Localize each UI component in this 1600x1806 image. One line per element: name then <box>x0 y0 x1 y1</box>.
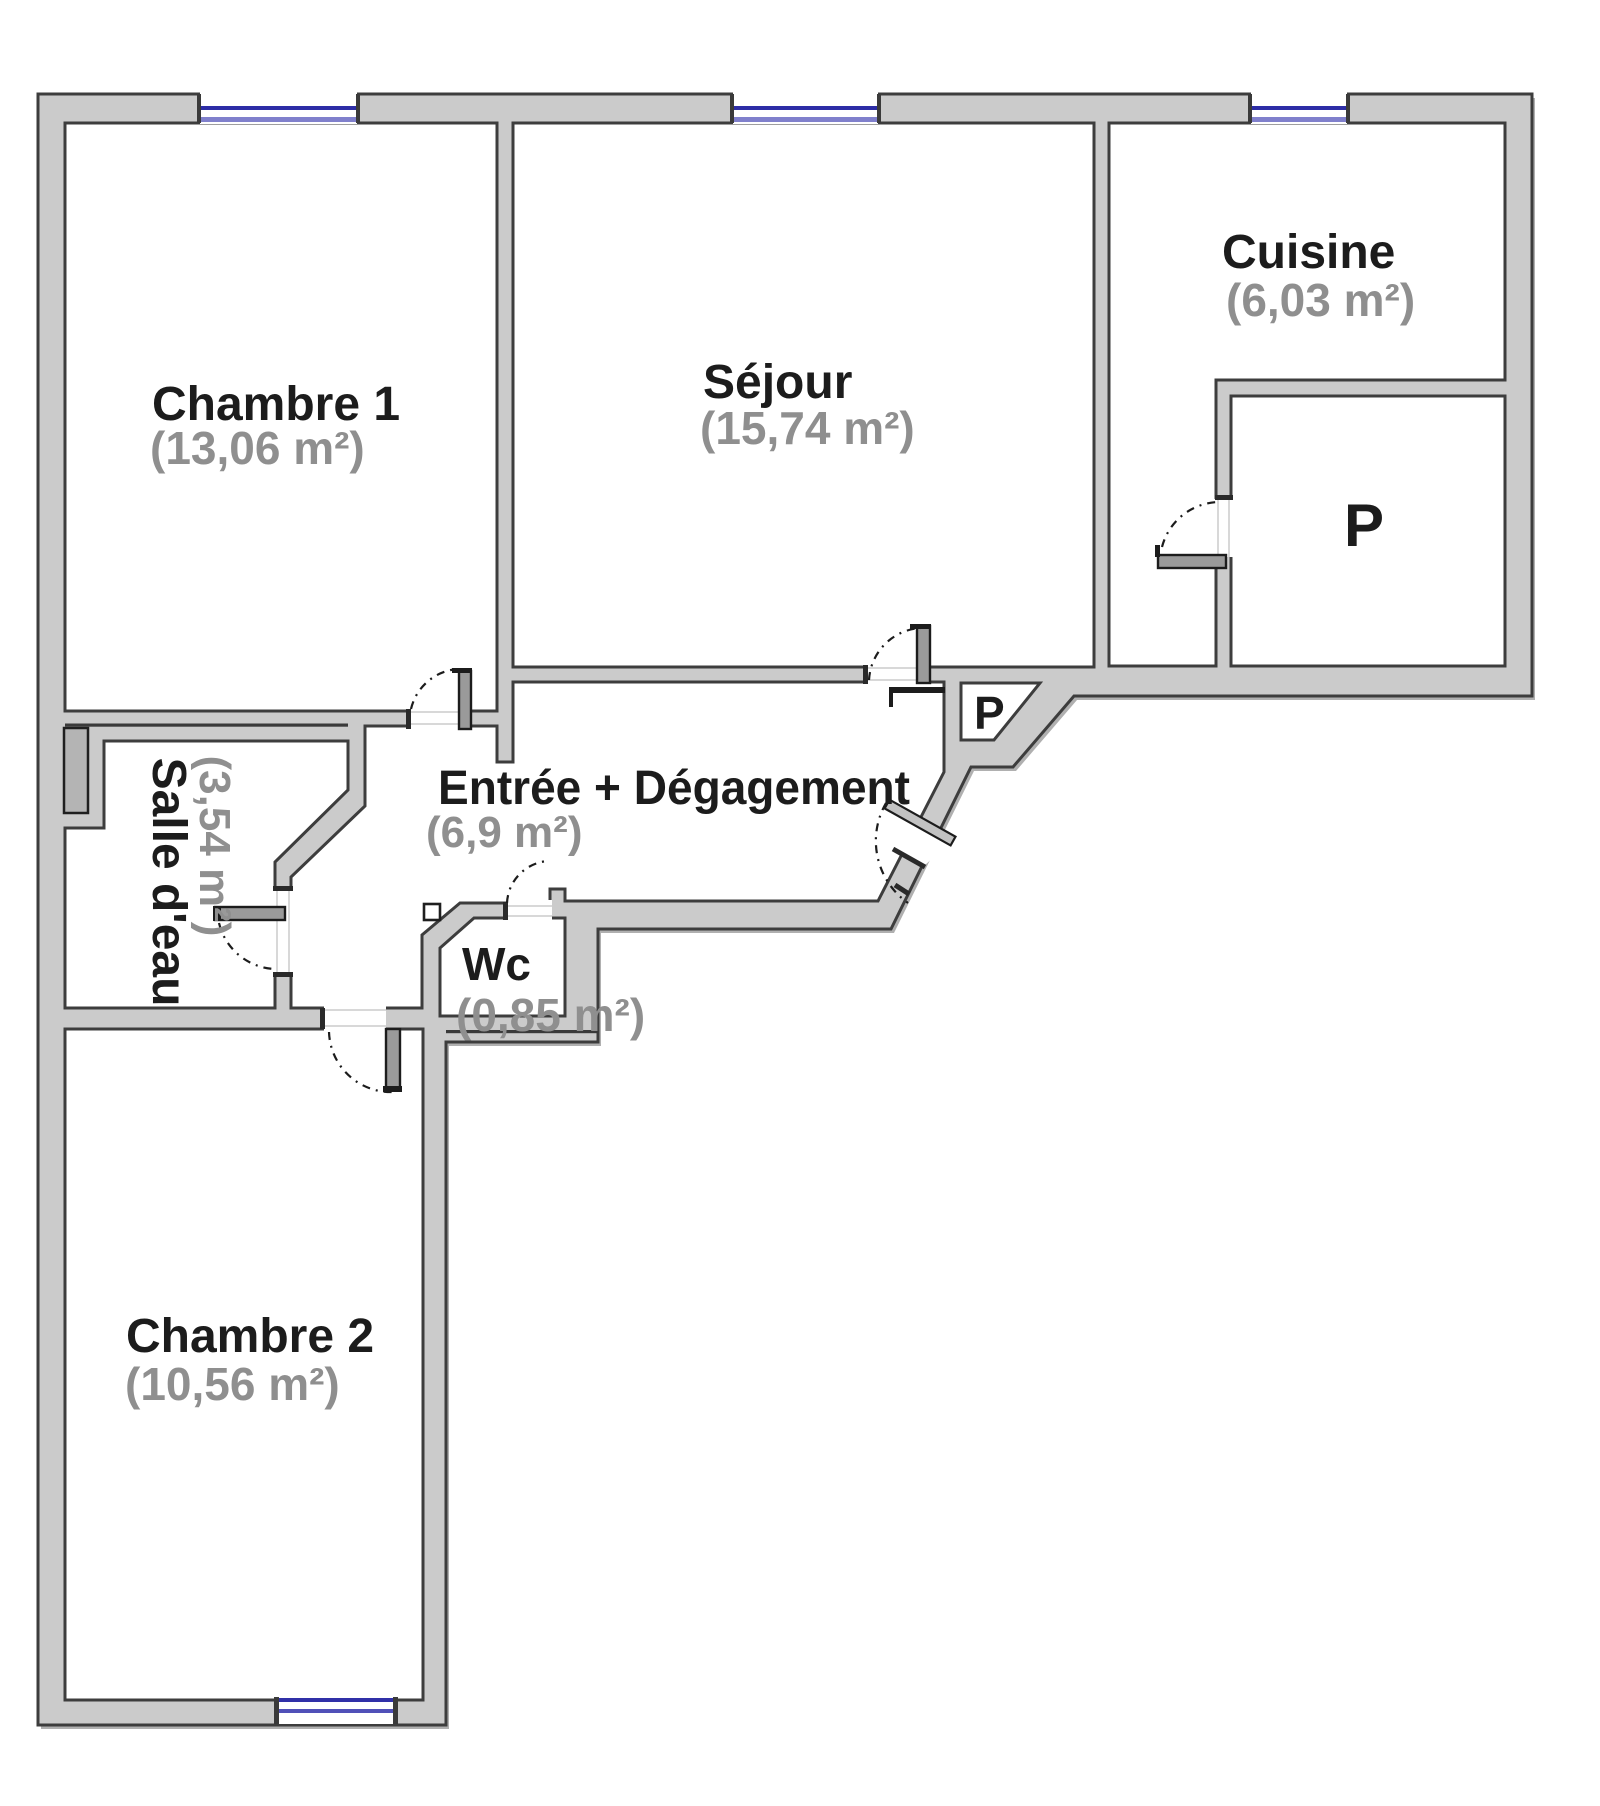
svg-text:P: P <box>974 687 1005 739</box>
svg-text:Salle d'eau: Salle d'eau <box>142 758 195 1007</box>
svg-text:(6,03 m²): (6,03 m²) <box>1226 274 1415 326</box>
svg-text:(15,74 m²): (15,74 m²) <box>700 402 915 454</box>
svg-text:(6,9 m²): (6,9 m²) <box>426 808 582 857</box>
svg-text:(3,54 m²): (3,54 m²) <box>190 756 239 937</box>
svg-text:(0,85 m²): (0,85 m²) <box>456 989 645 1041</box>
svg-text:Chambre 2: Chambre 2 <box>126 1310 374 1363</box>
svg-text:P: P <box>1344 492 1384 559</box>
svg-text:(10,56 m²): (10,56 m²) <box>125 1358 340 1410</box>
svg-text:(13,06 m²): (13,06 m²) <box>150 422 365 474</box>
svg-text:Cuisine: Cuisine <box>1222 226 1395 279</box>
svg-text:Wc: Wc <box>462 938 531 990</box>
